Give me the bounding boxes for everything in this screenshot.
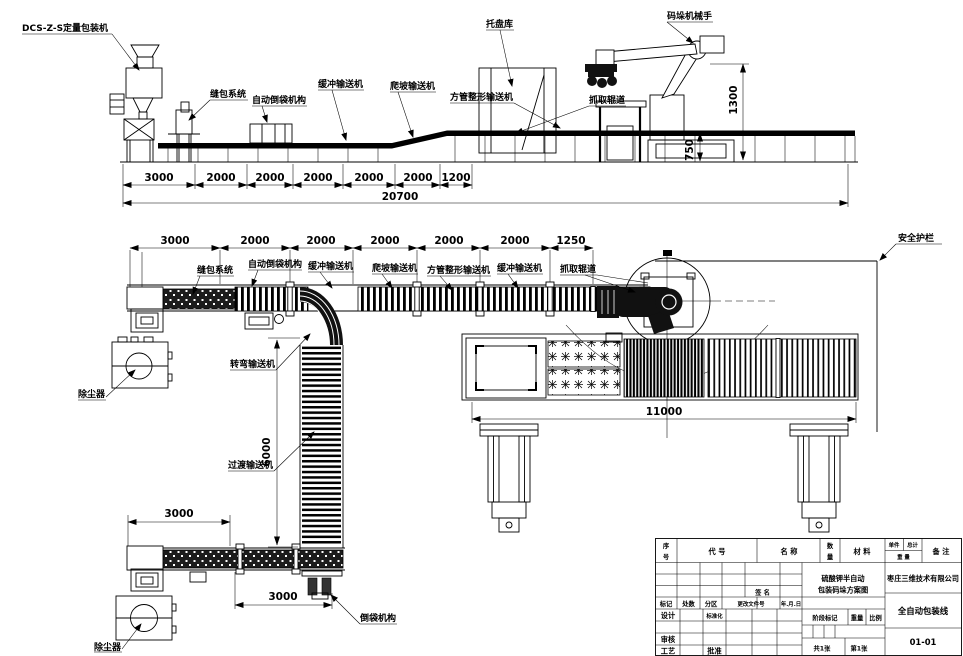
label-buffer: 缓冲输送机	[318, 78, 363, 90]
label-packer: DCS-Z-S定量包装机	[22, 22, 108, 34]
slat-conveyor-a	[235, 287, 308, 311]
nested-box-upper	[131, 309, 163, 332]
rev-date: 年.月.日	[781, 600, 801, 608]
label-pallet-store: 托盘库	[486, 18, 513, 30]
dim-text: 2000	[500, 235, 529, 247]
bottom-end-machine	[127, 546, 163, 570]
dim-text: 1300	[728, 85, 740, 114]
label-grab: 抓取辊道	[589, 94, 625, 106]
drawing-title-line2: 包装码垛方案图	[818, 586, 868, 595]
under-frame-inner	[249, 317, 269, 325]
pallet-truck-left	[480, 424, 538, 532]
header-remark: 备 注	[932, 547, 951, 556]
rev-count: 处数	[681, 599, 695, 608]
label-shaping: 方管整形输送机	[427, 264, 490, 276]
role-design: 设计	[661, 611, 676, 620]
dim-text: 2000	[240, 235, 269, 247]
pallet-stack	[548, 341, 620, 367]
drawing-canvas: 3000 2000 2000 2000 2000 2000 1200 20700…	[0, 0, 963, 656]
dim-text: 3000	[268, 591, 297, 603]
sheet-total: 共1张	[814, 644, 832, 653]
rev-doc: 更改文件号	[738, 600, 766, 608]
label-dust-upper: 除尘器	[78, 388, 106, 400]
drawing-number: 01-01	[910, 637, 937, 647]
label-bag-flip: 自动倒袋机构	[252, 94, 306, 106]
label-incline: 爬坡输送机	[389, 80, 435, 92]
role-craft: 工艺	[661, 647, 675, 656]
dim-total-text: 20700	[382, 191, 419, 203]
engineering-drawing-sheet: 3000 2000 2000 2000 2000 2000 1200 20700…	[0, 0, 963, 656]
label-buffer1: 缓冲输送机	[308, 260, 353, 272]
dim-text: 2000	[403, 172, 432, 184]
sign-label: 签 名	[754, 588, 770, 597]
bag-flip-plan	[302, 571, 342, 599]
rev-mark: 标记	[659, 599, 673, 608]
header-material: 材 料	[853, 547, 872, 556]
plan-view: 3000 2000 2000 2000 2000 2000 1250	[78, 232, 942, 653]
label-transition: 过渡输送机	[228, 459, 273, 471]
role-approve: 批准	[707, 647, 721, 656]
company-name: 枣庄三维技术有限公司	[886, 574, 959, 583]
dust-collector-upper	[112, 337, 172, 388]
dim-text: 2000	[354, 172, 383, 184]
drop-conveyor	[302, 346, 341, 546]
label-dust-lower: 除尘器	[94, 641, 122, 653]
pallet-truck-right	[790, 424, 848, 532]
drawing-title-line1: 硫酸钾半自动	[821, 574, 864, 583]
dim-text: 11000	[646, 406, 683, 418]
label-shaping: 方管整形输送机	[450, 91, 513, 103]
stage-weight: 重量	[851, 613, 864, 622]
header-name: 名 称	[781, 547, 799, 556]
turn-and-drop-conveyor	[300, 287, 343, 548]
label-bag-flip: 自动倒袋机构	[248, 258, 302, 270]
pallet-store	[479, 68, 556, 153]
pallet-stack	[548, 369, 620, 395]
label-sewing: 缝包系统	[197, 264, 233, 276]
header-no: 号	[663, 552, 670, 561]
packer-machine	[110, 45, 162, 162]
elevation-view: 3000 2000 2000 2000 2000 2000 1200 20700…	[22, 10, 858, 207]
title-block: 序 号 代 号 名 称 数 量 材 料 单件 总计 重 量 备 注 签 名 标记…	[656, 539, 962, 656]
plan-bottom-conveyor	[127, 544, 345, 599]
header-unit-weight: 单件	[889, 541, 900, 549]
dim-text: 2000	[255, 172, 284, 184]
header-code: 代 号	[708, 547, 726, 556]
bag-flip-machine	[250, 124, 292, 143]
plan-main-conveyor	[127, 282, 650, 342]
roller-conveyor	[708, 339, 856, 397]
dim-text: 3000	[144, 172, 173, 184]
dim-text: 1200	[441, 172, 470, 184]
dim-text: 2000	[303, 172, 332, 184]
label-bag-flip2: 倒袋机构	[359, 612, 396, 624]
header-qty: 量	[827, 552, 834, 561]
stage-mark: 阶段标记	[812, 613, 838, 622]
label-buffer2: 缓冲输送机	[497, 262, 542, 274]
roller-conveyor-dense	[624, 339, 704, 397]
drive-circle	[275, 315, 284, 324]
label-sewing: 缝包系统	[210, 88, 246, 100]
role-standard: 标准化	[705, 612, 723, 620]
dim-text: 3000	[160, 235, 189, 247]
label-turn: 转弯输送机	[230, 358, 275, 370]
plan-dimensions-top: 3000 2000 2000 2000 2000 2000 1250	[130, 235, 593, 288]
rev-zone: 分区	[705, 599, 718, 608]
stage-scale: 比例	[869, 613, 882, 622]
under-box	[190, 572, 206, 582]
label-fence: 安全护栏	[898, 232, 934, 244]
header-weight: 重 量	[897, 553, 910, 561]
header-total-weight: 总计	[907, 541, 918, 549]
dim-text: 2000	[306, 235, 335, 247]
header-qty: 数	[827, 541, 834, 550]
pallet-line-assembly: 11000	[462, 334, 858, 423]
title-block-texts: 序 号 代 号 名 称 数 量 材 料 单件 总计 重 量 备 注 签 名 标记…	[659, 541, 959, 656]
dim-text: 2000	[370, 235, 399, 247]
dust-collector-lower	[116, 596, 176, 640]
dim-text: 2000	[206, 172, 235, 184]
dim-text: 750	[684, 139, 696, 161]
dim-text: 2000	[434, 235, 463, 247]
packer-plan	[127, 287, 163, 309]
role-check: 审核	[661, 635, 676, 644]
nested-box-lower	[131, 569, 163, 591]
sheet-current: 第1张	[851, 644, 869, 653]
label-incline: 爬坡输送机	[371, 262, 417, 274]
label-robot: 码垛机械手	[667, 10, 712, 22]
header-no: 序	[663, 541, 670, 550]
sewing-machine	[168, 102, 200, 162]
label-grab: 抓取辊道	[560, 263, 596, 275]
belt-conveyor	[163, 289, 235, 309]
dim-text: 3000	[164, 508, 193, 520]
dim-text: 1250	[556, 235, 585, 247]
product-name: 全自动包装线	[897, 606, 949, 616]
